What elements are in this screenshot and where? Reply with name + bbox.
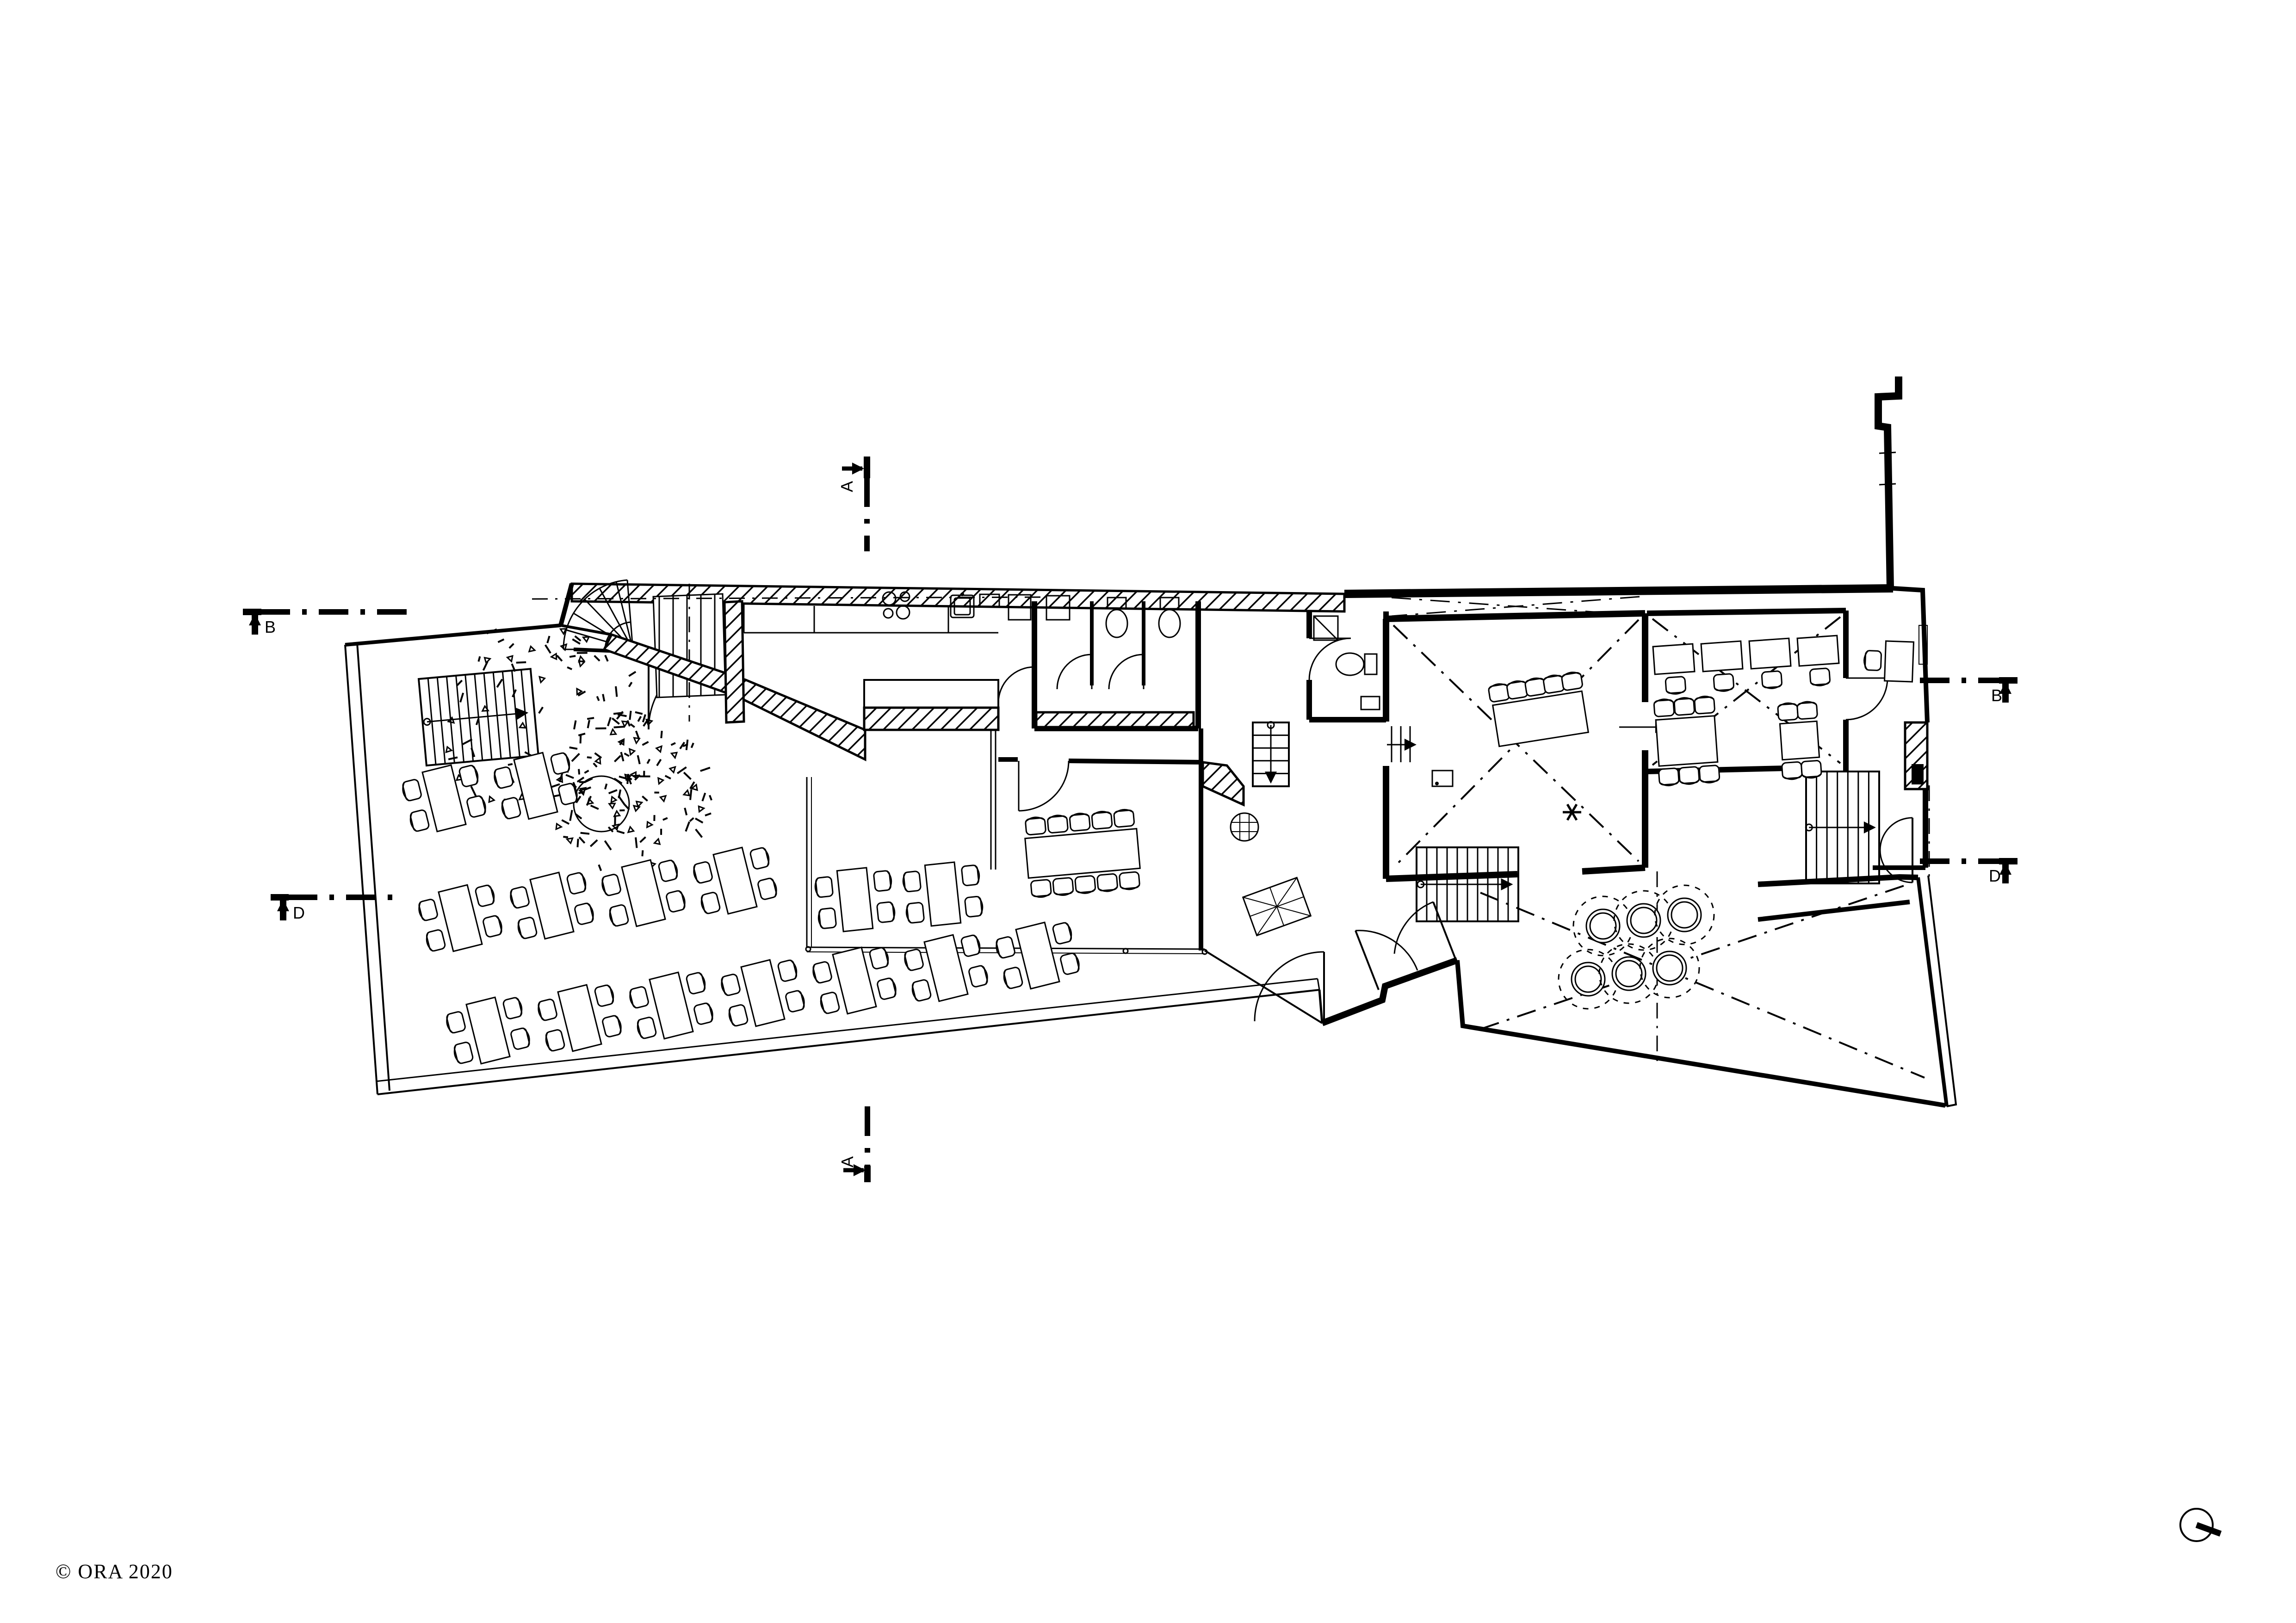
section-marker-D-right: D xyxy=(1920,861,2018,885)
round-table xyxy=(1573,896,1633,956)
terrace-table xyxy=(718,954,807,1032)
right-stair xyxy=(1806,771,1879,883)
section-label-A-top: A xyxy=(837,481,856,492)
terrace-table xyxy=(507,867,596,944)
corridor-flight xyxy=(1253,722,1289,786)
terrace-table xyxy=(416,879,505,957)
hall-table xyxy=(1488,671,1590,747)
lobby-desk xyxy=(1863,640,1913,682)
terrace-table xyxy=(810,942,899,1019)
toilet xyxy=(1336,653,1377,675)
round-table xyxy=(1614,891,1673,950)
north-indicator xyxy=(2180,1509,2221,1541)
floor-plan-page: AABDBD © ORA 2020 xyxy=(0,0,2296,1623)
indoor-table xyxy=(902,860,984,929)
tree-trunk xyxy=(574,776,629,832)
section-label-B-left: B xyxy=(265,617,276,636)
terrace-stair xyxy=(419,669,538,765)
round-table xyxy=(1655,885,1714,944)
star-symbol xyxy=(1563,804,1581,820)
entrance-area xyxy=(561,580,865,759)
stair-wing xyxy=(1201,619,1456,1023)
wc-block-2 xyxy=(1309,611,1386,720)
terrace-table xyxy=(691,842,780,919)
section-marker-B-right: B xyxy=(1920,680,2018,705)
table-four xyxy=(1777,701,1821,780)
section-label-D-left: D xyxy=(293,903,305,922)
wc-block-1 xyxy=(1034,596,1198,728)
sink xyxy=(1361,697,1380,710)
bar-counter xyxy=(864,680,998,708)
desk xyxy=(1653,644,1696,695)
table-six xyxy=(1654,696,1720,786)
section-marker-A-bottom: A xyxy=(838,1106,867,1182)
terrace-table xyxy=(599,854,688,932)
courtyard xyxy=(1480,871,1925,1078)
section-marker-D-left: D xyxy=(271,897,402,922)
terrace-table xyxy=(444,992,532,1069)
section-label-B-right: B xyxy=(1991,686,2002,705)
furniture-layer xyxy=(400,636,1913,1069)
section-marker-B-left: B xyxy=(243,612,419,636)
floor-plan-canvas: AABDBD © ORA 2020 xyxy=(0,0,2296,1623)
round-table xyxy=(1640,938,1699,998)
copyright-text: © ORA 2020 xyxy=(56,1560,173,1583)
section-label-A-bottom: A xyxy=(838,1156,857,1167)
round-table xyxy=(1599,944,1659,1003)
floor-grate xyxy=(1231,813,1258,841)
indoor-table xyxy=(814,865,896,934)
terrace-table xyxy=(627,967,716,1044)
right-stair-exit xyxy=(1758,764,1929,919)
terrace-table xyxy=(902,929,990,1007)
long-table xyxy=(1023,808,1142,898)
wing-stair xyxy=(1417,847,1518,921)
round-table xyxy=(1559,950,1618,1009)
section-marker-A-top: A xyxy=(837,457,867,551)
terrace-table xyxy=(400,759,489,837)
terrace-table xyxy=(535,979,624,1057)
terrace-table xyxy=(993,917,1082,994)
section-label-D-right: D xyxy=(1989,866,2001,885)
desk xyxy=(1797,636,1840,687)
entrance-mat xyxy=(1243,877,1311,935)
desk xyxy=(1749,638,1792,690)
